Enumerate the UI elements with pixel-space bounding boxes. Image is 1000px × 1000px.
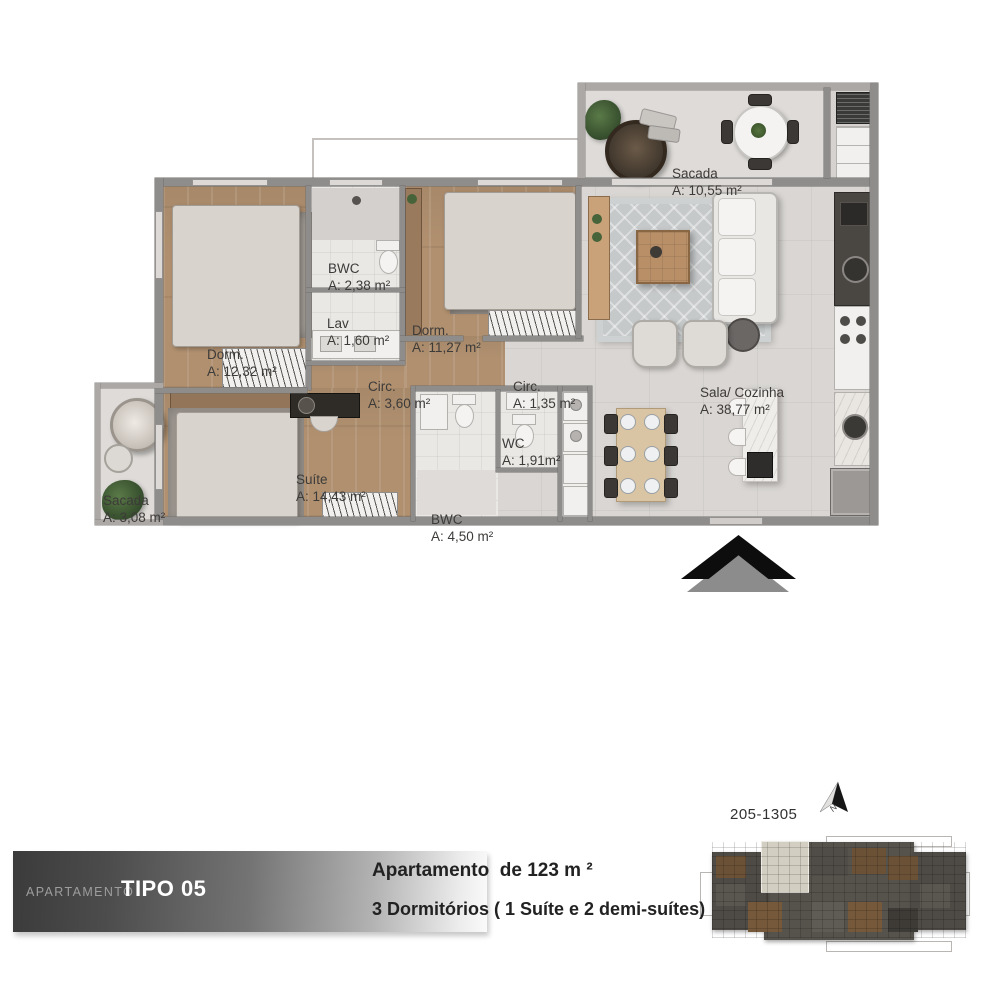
footer-rooms-text: 3 Dormitórios ( 1 Suíte e 2 demi-suítes) [372, 899, 705, 920]
window-dorm-left-side [156, 212, 162, 278]
dining-chair-l1 [604, 414, 618, 434]
keyplan-unit-1 [716, 856, 746, 878]
stove-burner-4 [856, 334, 866, 344]
balcony-table-plant [751, 123, 766, 138]
bwc-suite-toilet-bowl [455, 404, 474, 428]
sofa-cushion-2 [718, 238, 756, 276]
room-label-suite: SuíteA: 14,43 m² [296, 437, 366, 539]
dining-chair-l3 [604, 478, 618, 498]
balcony-chair-south [748, 158, 772, 170]
stove-burner-1 [840, 316, 850, 326]
armchair-1 [632, 320, 678, 368]
room-label-bwc-suite: BWCA: 4,50 m² [431, 477, 493, 579]
kitchen-round-sink [842, 256, 869, 283]
laundry-cabinet-2 [563, 486, 590, 516]
room-label-sacada-left: SacadaA: 3,08 m² [103, 458, 165, 560]
wall-right-main [870, 83, 878, 525]
keyplan-unit-5 [852, 848, 886, 874]
plate-3 [620, 446, 636, 462]
keyplan-unit-2 [716, 884, 746, 906]
wall-bottom-main [155, 517, 878, 525]
balcony-chair-north [748, 94, 772, 106]
keyplan-unit-7 [848, 902, 882, 932]
balcony-chair-east [787, 120, 799, 144]
dining-chair-r3 [664, 478, 678, 498]
keyplan-unit-9 [920, 884, 950, 908]
sideboard-plant-1 [592, 214, 602, 224]
dining-chair-r2 [664, 446, 678, 466]
wall-v-laundry-right [588, 386, 592, 521]
sofa-cushion-3 [718, 278, 756, 316]
sideboard-plant-2 [592, 232, 602, 242]
keyplan-unit-range: 205-1305 [730, 806, 797, 823]
wall-balcony-left-side [95, 383, 100, 525]
kitchen-upper-cabinets [836, 126, 874, 182]
room-label-sala-cozinha: Sala/ CozinhaA: 38,77 m² [700, 350, 784, 452]
floorplan-page: SacadaA: 10,55 m² BWCA: 2,38 m² LavA: 1,… [0, 0, 1000, 1000]
wall-balcony-left-top [95, 383, 163, 388]
wall-balcony-kitchen-divider [824, 88, 830, 178]
dining-chair-l2 [604, 446, 618, 466]
dorm-mid-closet [488, 310, 578, 338]
banner-label-apartamento: APARTAMENTO [26, 885, 134, 899]
kitchen-coffee-machine [840, 202, 868, 226]
plate-2 [644, 414, 660, 430]
suite-vanity-mirror [298, 397, 315, 414]
dorm-mid-wardrobe-plant [407, 194, 417, 204]
stove-burner-2 [856, 316, 866, 326]
wall-h-dormmid-bottom-b [483, 336, 583, 341]
coffee-table [636, 230, 690, 284]
ac-condenser-grill [836, 92, 874, 124]
window-bwc-top [330, 180, 382, 185]
stove-burner-3 [840, 334, 850, 344]
wall-balcony-left [578, 83, 585, 178]
keyplan-unit-3 [748, 902, 782, 932]
slab-projection-outline [312, 138, 578, 183]
keyplan-outline-bottom [826, 941, 952, 952]
suite-bed [176, 412, 298, 522]
wall-v-bwc-wc [496, 390, 500, 470]
kitchen-prep-sink [842, 414, 868, 440]
plate-1 [620, 414, 636, 430]
entrance-threshold [710, 518, 762, 524]
keyplan-unit-4 [812, 848, 848, 876]
banner-label-tipo: TIPO 05 [121, 876, 206, 902]
keyplan-unit-10 [888, 908, 918, 932]
room-label-sacada-top: SacadaA: 10,55 m² [672, 131, 742, 233]
keyplan-unit-8 [888, 856, 918, 880]
window-dorm-mid [478, 180, 562, 185]
bwc-top-shower-head [352, 196, 361, 205]
coffee-table-decor [650, 246, 662, 258]
wall-v-dormmid-right [576, 186, 581, 338]
window-dorm-left [193, 180, 267, 185]
laundry-cabinet-1 [563, 454, 590, 484]
keyplan-unit-6 [812, 902, 844, 932]
island-stool-3 [728, 458, 746, 476]
room-label-dorm-left: Dorm.A: 12,32 m² [207, 312, 277, 414]
footer-area-text: Apartamento de 123 m ² [372, 860, 593, 882]
room-label-wc: WCA: 1,91m² [502, 401, 561, 503]
keyplan-highlighted-unit [762, 842, 808, 892]
dining-chair-r1 [664, 414, 678, 434]
side-table-round [726, 318, 760, 352]
room-label-circ-main: Circ.A: 3,60 m² [368, 344, 430, 446]
plate-4 [644, 446, 660, 462]
island-cooktop [747, 452, 773, 478]
plate-5 [620, 478, 636, 494]
plate-6 [644, 478, 660, 494]
